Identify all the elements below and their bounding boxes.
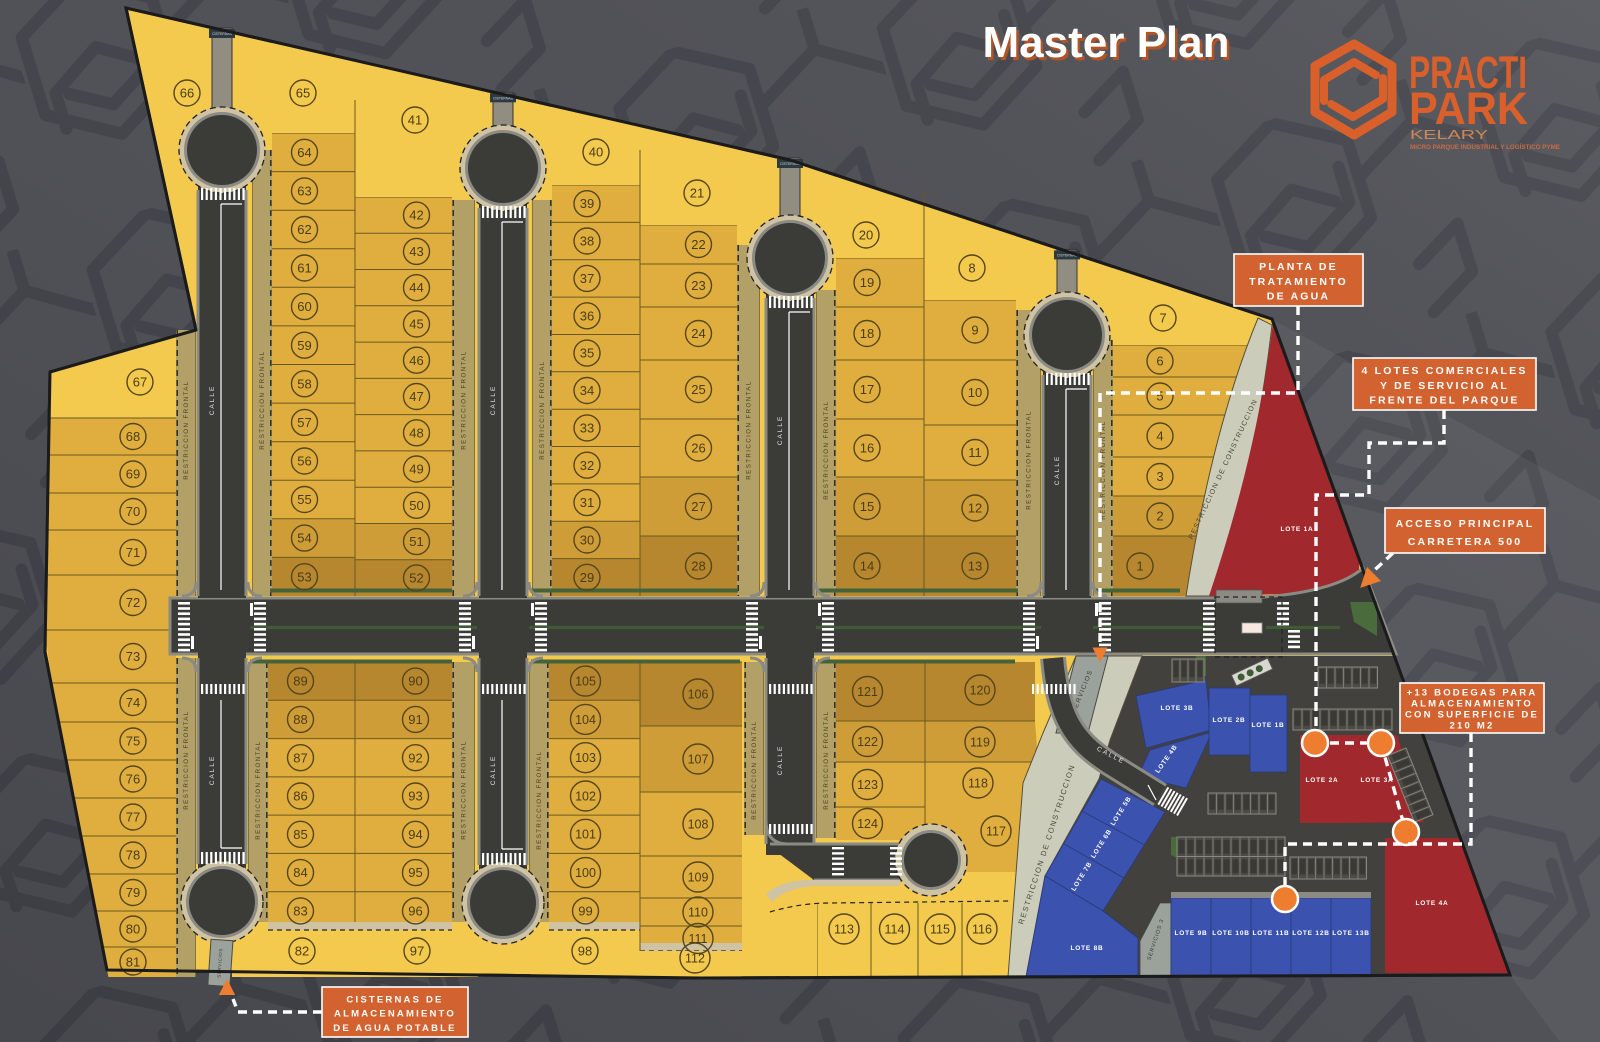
svg-text:RESTRICCION FRONTAL: RESTRICCION FRONTAL bbox=[183, 380, 190, 479]
svg-text:DE AGUA: DE AGUA bbox=[1267, 290, 1330, 302]
svg-text:47: 47 bbox=[409, 389, 423, 404]
svg-text:16: 16 bbox=[860, 441, 874, 456]
svg-text:LOTE 3A: LOTE 3A bbox=[1360, 777, 1393, 784]
svg-text:51: 51 bbox=[409, 534, 423, 549]
svg-text:101: 101 bbox=[575, 828, 596, 842]
svg-text:85: 85 bbox=[293, 827, 307, 842]
svg-text:ACCESO PRINCIPAL: ACCESO PRINCIPAL bbox=[1396, 518, 1535, 530]
svg-text:CALLE: CALLE bbox=[209, 755, 216, 786]
svg-text:9: 9 bbox=[971, 323, 978, 338]
svg-text:CALLE: CALLE bbox=[209, 385, 216, 416]
svg-text:73: 73 bbox=[126, 649, 140, 664]
svg-text:28: 28 bbox=[691, 559, 705, 574]
svg-text:87: 87 bbox=[293, 750, 307, 765]
svg-text:22: 22 bbox=[691, 237, 705, 252]
svg-text:LOTE 2B: LOTE 2B bbox=[1212, 717, 1245, 724]
svg-text:Master Plan: Master Plan bbox=[983, 18, 1230, 67]
svg-text:27: 27 bbox=[691, 499, 705, 514]
svg-text:PLANTA DE: PLANTA DE bbox=[1259, 261, 1338, 273]
svg-text:48: 48 bbox=[409, 425, 423, 440]
svg-text:100: 100 bbox=[575, 866, 596, 880]
svg-text:3: 3 bbox=[1156, 469, 1163, 484]
svg-text:LOTE 8B: LOTE 8B bbox=[1070, 945, 1103, 952]
svg-text:32: 32 bbox=[580, 458, 594, 473]
svg-text:24: 24 bbox=[691, 326, 705, 341]
svg-text:83: 83 bbox=[293, 903, 307, 918]
svg-text:68: 68 bbox=[126, 429, 140, 444]
svg-text:11: 11 bbox=[968, 445, 982, 460]
svg-text:103: 103 bbox=[575, 751, 596, 765]
svg-text:41: 41 bbox=[408, 113, 422, 128]
svg-text:52: 52 bbox=[409, 570, 423, 585]
svg-text:Y DE SERVICIO AL: Y DE SERVICIO AL bbox=[1380, 380, 1509, 392]
svg-text:MICRO PARQUE INDUSTRIAL Y LOGÍ: MICRO PARQUE INDUSTRIAL Y LOGÍSTICO PYME bbox=[1410, 142, 1561, 151]
svg-text:CALLE: CALLE bbox=[777, 415, 784, 446]
svg-text:RESTRICCION FRONTAL: RESTRICCION FRONTAL bbox=[823, 400, 830, 499]
svg-text:RESTRICCION FRONTAL: RESTRICCION FRONTAL bbox=[1026, 410, 1033, 509]
svg-text:62: 62 bbox=[297, 222, 311, 237]
svg-text:LOTE 4A: LOTE 4A bbox=[1415, 900, 1448, 907]
svg-text:98: 98 bbox=[578, 944, 592, 959]
svg-text:RESTRICCION FRONTAL: RESTRICCION FRONTAL bbox=[255, 740, 262, 839]
svg-text:44: 44 bbox=[409, 280, 423, 295]
svg-text:CALLE: CALLE bbox=[490, 755, 497, 786]
svg-text:RESTRICCION FRONTAL: RESTRICCION FRONTAL bbox=[259, 350, 266, 449]
svg-text:CALLE: CALLE bbox=[1054, 455, 1061, 486]
svg-text:61: 61 bbox=[297, 261, 311, 276]
svg-text:CON SUPERFICIE DE: CON SUPERFICIE DE bbox=[1405, 710, 1539, 721]
svg-text:RESTRICCION FRONTAL: RESTRICCION FRONTAL bbox=[461, 740, 468, 839]
svg-text:29: 29 bbox=[580, 570, 594, 585]
svg-text:66: 66 bbox=[180, 86, 194, 101]
svg-text:65: 65 bbox=[296, 86, 310, 101]
svg-text:96: 96 bbox=[408, 903, 422, 918]
svg-text:108: 108 bbox=[688, 817, 709, 831]
svg-text:118: 118 bbox=[968, 776, 988, 790]
svg-text:21: 21 bbox=[690, 186, 704, 201]
svg-text:LOTE 9B: LOTE 9B bbox=[1174, 930, 1207, 937]
svg-text:92: 92 bbox=[408, 750, 422, 765]
svg-text:DE AGUA POTABLE: DE AGUA POTABLE bbox=[333, 1023, 456, 1034]
svg-text:115: 115 bbox=[930, 922, 950, 936]
svg-text:53: 53 bbox=[297, 569, 311, 584]
svg-text:97: 97 bbox=[410, 944, 424, 959]
svg-text:72: 72 bbox=[126, 595, 140, 610]
svg-text:40: 40 bbox=[589, 145, 603, 160]
svg-text:123: 123 bbox=[857, 778, 878, 792]
svg-text:74: 74 bbox=[126, 695, 140, 710]
svg-text:38: 38 bbox=[580, 234, 594, 249]
svg-text:121: 121 bbox=[857, 685, 878, 699]
svg-text:LOTE 12B: LOTE 12B bbox=[1292, 930, 1329, 937]
svg-text:36: 36 bbox=[580, 308, 594, 323]
svg-text:59: 59 bbox=[297, 338, 311, 353]
svg-text:14: 14 bbox=[860, 559, 874, 574]
svg-text:64: 64 bbox=[297, 145, 311, 160]
svg-text:37: 37 bbox=[580, 271, 594, 286]
svg-text:89: 89 bbox=[293, 674, 307, 689]
svg-text:86: 86 bbox=[293, 789, 307, 804]
svg-text:110: 110 bbox=[688, 905, 708, 919]
svg-text:CALLE: CALLE bbox=[777, 745, 784, 776]
svg-text:79: 79 bbox=[126, 885, 140, 900]
svg-text:35: 35 bbox=[580, 346, 594, 361]
svg-text:LOTE 1A: LOTE 1A bbox=[1280, 526, 1313, 533]
svg-text:8: 8 bbox=[968, 261, 975, 276]
svg-text:119: 119 bbox=[970, 735, 990, 749]
svg-text:120: 120 bbox=[970, 683, 991, 697]
svg-text:RESTRICCION FRONTAL: RESTRICCION FRONTAL bbox=[461, 350, 468, 449]
svg-text:CARRETERA 500: CARRETERA 500 bbox=[1408, 536, 1523, 548]
svg-text:RESTRICCION FRONTAL: RESTRICCION FRONTAL bbox=[539, 360, 546, 459]
svg-text:31: 31 bbox=[580, 495, 594, 510]
svg-text:210 M2: 210 M2 bbox=[1450, 721, 1495, 732]
svg-text:RESTRICCION FRONTAL: RESTRICCION FRONTAL bbox=[823, 710, 830, 809]
svg-text:4 LOTES COMERCIALES: 4 LOTES COMERCIALES bbox=[1361, 365, 1527, 377]
svg-text:124: 124 bbox=[857, 817, 878, 831]
svg-text:60: 60 bbox=[297, 299, 311, 314]
svg-text:50: 50 bbox=[409, 498, 423, 513]
svg-text:18: 18 bbox=[860, 326, 874, 341]
svg-text:99: 99 bbox=[578, 903, 592, 918]
svg-text:77: 77 bbox=[126, 810, 140, 825]
svg-text:63: 63 bbox=[297, 183, 311, 198]
svg-text:55: 55 bbox=[297, 492, 311, 507]
svg-text:116: 116 bbox=[972, 922, 992, 936]
svg-text:12: 12 bbox=[968, 501, 982, 516]
svg-text:6: 6 bbox=[1156, 354, 1163, 369]
svg-text:RESTRICCION FRONTAL: RESTRICCION FRONTAL bbox=[746, 380, 753, 479]
svg-text:105: 105 bbox=[575, 675, 596, 689]
svg-text:LOTE 2A: LOTE 2A bbox=[1305, 777, 1338, 784]
svg-text:4: 4 bbox=[1156, 429, 1163, 444]
svg-text:1: 1 bbox=[1136, 559, 1143, 574]
svg-text:114: 114 bbox=[885, 922, 905, 936]
svg-text:RESTRICCION FRONTAL: RESTRICCION FRONTAL bbox=[183, 710, 190, 809]
svg-text:71: 71 bbox=[126, 545, 140, 560]
svg-text:LOTE 11B: LOTE 11B bbox=[1252, 930, 1289, 937]
svg-text:81: 81 bbox=[126, 955, 140, 970]
svg-text:39: 39 bbox=[580, 196, 594, 211]
svg-text:33: 33 bbox=[580, 420, 594, 435]
svg-text:112: 112 bbox=[685, 951, 705, 965]
svg-text:ALMACENAMIENTO: ALMACENAMIENTO bbox=[334, 1009, 456, 1020]
svg-text:7: 7 bbox=[1159, 311, 1166, 326]
svg-text:88: 88 bbox=[293, 712, 307, 727]
svg-text:FRENTE DEL PARQUE: FRENTE DEL PARQUE bbox=[1369, 394, 1519, 406]
svg-text:78: 78 bbox=[126, 848, 140, 863]
svg-text:56: 56 bbox=[297, 454, 311, 469]
svg-text:LOTE 10B: LOTE 10B bbox=[1212, 930, 1249, 937]
svg-text:102: 102 bbox=[575, 789, 596, 803]
svg-text:10: 10 bbox=[968, 385, 982, 400]
svg-text:5: 5 bbox=[1156, 389, 1163, 404]
svg-text:17: 17 bbox=[860, 382, 874, 397]
svg-text:90: 90 bbox=[408, 674, 422, 689]
svg-text:58: 58 bbox=[297, 376, 311, 391]
svg-text:43: 43 bbox=[409, 244, 423, 259]
svg-text:KELARY: KELARY bbox=[1410, 127, 1488, 142]
svg-text:RESTRICCION FRONTAL: RESTRICCION FRONTAL bbox=[536, 750, 543, 849]
svg-text:46: 46 bbox=[409, 353, 423, 368]
svg-text:104: 104 bbox=[575, 713, 596, 727]
svg-text:20: 20 bbox=[859, 228, 873, 243]
svg-text:42: 42 bbox=[409, 208, 423, 223]
svg-text:15: 15 bbox=[860, 499, 874, 514]
svg-text:91: 91 bbox=[408, 712, 422, 727]
svg-text:25: 25 bbox=[691, 382, 705, 397]
svg-text:70: 70 bbox=[126, 504, 140, 519]
svg-text:ALMACENAMIENTO: ALMACENAMIENTO bbox=[1411, 699, 1533, 710]
svg-text:LOTE 3B: LOTE 3B bbox=[1160, 705, 1193, 712]
svg-text:109: 109 bbox=[688, 870, 709, 884]
svg-text:76: 76 bbox=[126, 772, 140, 787]
svg-text:113: 113 bbox=[834, 922, 854, 936]
svg-text:19: 19 bbox=[860, 275, 874, 290]
svg-text:34: 34 bbox=[580, 383, 594, 398]
svg-text:49: 49 bbox=[409, 462, 423, 477]
svg-text:23: 23 bbox=[691, 278, 705, 293]
svg-text:69: 69 bbox=[126, 467, 140, 482]
svg-text:107: 107 bbox=[688, 752, 709, 766]
svg-text:TRATAMIENTO: TRATAMIENTO bbox=[1249, 276, 1348, 288]
svg-text:54: 54 bbox=[297, 531, 311, 546]
svg-text:94: 94 bbox=[408, 827, 422, 842]
svg-text:84: 84 bbox=[293, 865, 307, 880]
svg-text:LOTE 1B: LOTE 1B bbox=[1251, 722, 1284, 729]
svg-text:RESTRICCION FRONTAL: RESTRICCION FRONTAL bbox=[751, 720, 758, 819]
svg-text:2: 2 bbox=[1156, 509, 1163, 524]
svg-text:26: 26 bbox=[691, 441, 705, 456]
svg-text:CISTERNAS DE: CISTERNAS DE bbox=[346, 995, 443, 1006]
svg-text:57: 57 bbox=[297, 415, 311, 430]
svg-text:122: 122 bbox=[857, 735, 878, 749]
svg-text:93: 93 bbox=[408, 789, 422, 804]
svg-text:45: 45 bbox=[409, 317, 423, 332]
svg-text:95: 95 bbox=[408, 865, 422, 880]
svg-text:117: 117 bbox=[986, 824, 1006, 838]
svg-text:CALLE: CALLE bbox=[490, 385, 497, 416]
svg-text:LOTE 13B: LOTE 13B bbox=[1332, 930, 1369, 937]
svg-text:106: 106 bbox=[688, 687, 709, 701]
svg-text:80: 80 bbox=[126, 922, 140, 937]
svg-text:13: 13 bbox=[968, 559, 982, 574]
svg-text:+13 BODEGAS PARA: +13 BODEGAS PARA bbox=[1407, 688, 1538, 699]
svg-text:67: 67 bbox=[133, 375, 147, 390]
svg-text:82: 82 bbox=[295, 944, 309, 959]
svg-text:30: 30 bbox=[580, 533, 594, 548]
svg-text:75: 75 bbox=[126, 734, 140, 749]
